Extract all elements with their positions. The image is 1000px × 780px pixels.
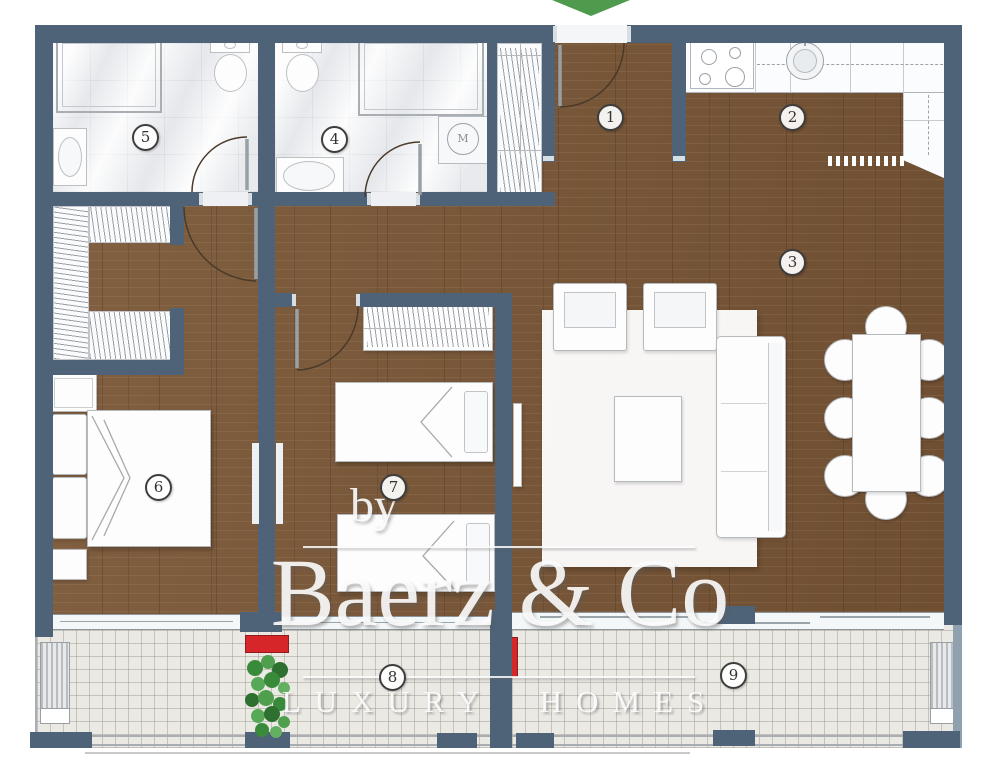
planter-box (245, 635, 289, 653)
ac-unit-base (40, 708, 70, 724)
wall-bathrooms-bottom (250, 192, 370, 206)
wall-niche-panel (276, 443, 283, 524)
sink-basin (283, 161, 335, 191)
door-frame (292, 294, 296, 306)
window-glazing-line (289, 622, 483, 623)
railing-pier (30, 732, 92, 748)
wall-bathroom-divider (258, 25, 275, 206)
room-label-6-bedroom: 6 (145, 474, 172, 501)
wardrobe-shelf-line (364, 328, 492, 329)
armchair (643, 283, 717, 351)
door-frame (199, 193, 203, 205)
ac-unit (40, 642, 70, 710)
railing-pier (713, 730, 755, 746)
wall-entry-left-jamb (542, 25, 555, 162)
room-label-1-entry-hall: 1 (597, 104, 624, 131)
wall-niche-panel (252, 443, 259, 524)
armchair (553, 283, 627, 351)
entrance-opening (555, 25, 627, 43)
dressing-rail-left (53, 206, 89, 360)
wall-dressing-stub (170, 192, 184, 245)
floor-plan-canvas: M (0, 0, 1000, 780)
sofa-backrest (768, 343, 782, 531)
railing-pier (903, 731, 960, 748)
counter-division-line (850, 37, 851, 93)
wall-dressing-stub (170, 308, 184, 363)
wall-bathrooms-bottom (418, 192, 555, 206)
wall-left (35, 25, 53, 637)
wall-bedroom6-top (35, 360, 184, 375)
entrance-arrow-icon (552, 0, 630, 16)
burner-icon (701, 49, 717, 65)
single-bed (337, 514, 495, 592)
toilet-bowl (214, 54, 247, 92)
door-frame (553, 26, 557, 42)
wall-balcony-divider (490, 610, 512, 748)
coffee-table (614, 396, 682, 482)
bedroom-6-window (53, 614, 240, 630)
room-label-8-balcony: 8 (379, 664, 406, 691)
doorway-threshold (203, 192, 248, 206)
sofa (716, 336, 786, 538)
window-pier (718, 606, 755, 624)
wall-living-left (495, 293, 512, 628)
wardrobe-hangers-icon (367, 307, 489, 347)
counter-division-line (903, 37, 904, 93)
kitchen-sink-basin (793, 49, 817, 73)
door-frame (627, 26, 631, 42)
room-label-4-bathroom: 4 (321, 126, 348, 153)
wall-right (944, 25, 962, 625)
lower-floor-edge-line (85, 752, 690, 754)
room-label-9-balcony: 9 (720, 662, 747, 689)
sliding-door-leaf-line (820, 616, 930, 618)
sofa-cushion-line (721, 403, 767, 404)
wall-entry-kitchen (672, 25, 686, 162)
door-frame (367, 193, 371, 205)
nightstand (50, 549, 87, 580)
room-label-2-kitchen: 2 (779, 104, 806, 131)
wall-top (35, 25, 962, 43)
room-label-5-bathroom: 5 (132, 124, 159, 151)
railing-pier (516, 733, 554, 748)
upper-cabinet-dashed-line (928, 95, 929, 155)
door-frame (248, 193, 252, 205)
wall-bedroom-divider (258, 206, 275, 628)
washing-machine-drum-icon: M (447, 123, 479, 155)
burner-icon (729, 47, 741, 59)
pillow (466, 523, 490, 583)
sofa-cushion-line (721, 471, 767, 472)
toilet-bowl (286, 54, 319, 92)
door-frame (416, 193, 420, 205)
dining-table (852, 334, 921, 492)
tv-unit (513, 403, 522, 487)
washing-machine-label: M (457, 132, 468, 145)
wall-bathroom4-right (487, 25, 497, 206)
armchair-cushion (564, 292, 616, 328)
bedroom-7-window (282, 616, 490, 630)
counter-division-line (755, 37, 756, 93)
window-pier (240, 612, 282, 632)
wardrobe (363, 303, 493, 351)
pillow (52, 414, 87, 475)
sliding-door-leaf-line (540, 616, 690, 618)
pillow (464, 391, 488, 453)
sink-basin (58, 137, 82, 177)
burner-icon (699, 73, 711, 85)
dressing-rail-bottom (89, 311, 172, 360)
dresser (50, 374, 97, 412)
shower-tray-inner-line (364, 43, 478, 110)
wardrobe-divider-line (520, 43, 521, 192)
window-glazing-line (60, 621, 233, 622)
dresser-inner-line (54, 378, 93, 408)
pillow (52, 477, 87, 539)
railing-pier (437, 733, 477, 748)
wall-bedroom7-top (358, 293, 512, 307)
burner-icon (725, 67, 745, 87)
wall-end-cap (543, 156, 554, 161)
dressing-rail-top (89, 206, 172, 243)
doorway-threshold (371, 192, 416, 206)
wall-end-cap (673, 156, 685, 161)
shower-tray-inner-line (62, 43, 156, 107)
armchair-cushion (654, 292, 706, 328)
bar-dashes-icon (828, 156, 908, 166)
single-bed (335, 382, 493, 462)
room-label-7-bedroom: 7 (380, 474, 407, 501)
railing-pier (245, 732, 290, 748)
door-frame (356, 294, 360, 306)
room-label-3-living-room: 3 (779, 249, 806, 276)
sliding-door-leaf-line (700, 622, 810, 624)
